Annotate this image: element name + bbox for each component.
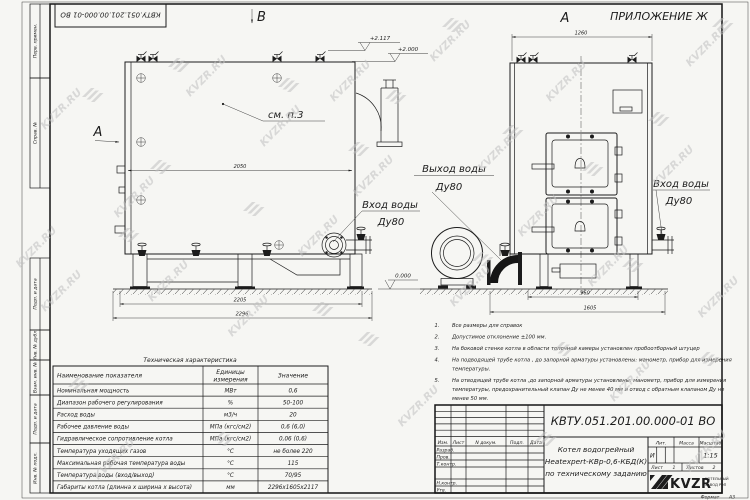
spec-row-unit: °С xyxy=(227,461,234,467)
position-marker-icon xyxy=(137,138,146,147)
note-number: 5. xyxy=(435,378,440,384)
spec-table-title: Техническая характеристика xyxy=(143,357,237,364)
spec-row-name: Температура уходящих газов xyxy=(57,449,147,455)
position-marker-icon xyxy=(273,74,282,83)
tb-row-razrab: Разраб. xyxy=(437,448,455,454)
company-line2: ЗАВОД РЭП xyxy=(705,483,727,487)
spec-col-unit-2: измерения xyxy=(213,377,248,384)
format-note: Формат А3 xyxy=(701,495,735,500)
elevation-zero-text: 0.000 xyxy=(395,274,411,280)
tb-hdr-list: Лист xyxy=(452,440,465,446)
note-text: Все размеры для справок xyxy=(452,323,523,329)
tb-hdr-podp: Подп. xyxy=(510,440,524,446)
inlet-side-text-1: Вход воды xyxy=(362,200,418,211)
view-a-front-label: А xyxy=(560,11,570,26)
margin-label-podp-data-1: Подп. и дата xyxy=(33,278,39,309)
spec-row-unit: °С xyxy=(227,449,234,455)
tb-row-tkontr: Т.контр. xyxy=(437,462,457,468)
view-a-label: А xyxy=(93,125,103,140)
spec-row-value: 20 xyxy=(289,413,297,419)
note-text: менее 50 мм. xyxy=(452,396,488,402)
spec-row-value: 0,6 (6,0) xyxy=(281,425,305,431)
margin-label-inv-dubl: Инв. № дубл. xyxy=(33,329,39,360)
spec-row-value: 115 xyxy=(288,461,299,467)
top-designation-text: КВТУ.051.201.00.000-01 ВО xyxy=(60,11,161,19)
appendix-label: ПРИЛОЖЕНИЕ Ж xyxy=(610,10,709,23)
tb-hdr-doc: N докум. xyxy=(475,440,496,446)
tb-lit-label: Лит. xyxy=(655,441,667,447)
spec-row-unit: МПа (кгс/см2) xyxy=(210,425,251,431)
spec-row-value: 2296х1605х2117 xyxy=(268,485,319,491)
tb-name-line1: Котел водогрейный xyxy=(558,445,635,454)
note-text: температуры, предохранительный клапан Ду… xyxy=(452,387,724,393)
margin-label-sprav-n: Справ. № xyxy=(33,122,39,145)
tb-lit-value: И xyxy=(650,452,655,460)
note-text: Допустимое отклонение ±100 мм. xyxy=(451,335,546,341)
dim-side-base-text: 2205 xyxy=(234,298,247,304)
tb-sheets-value: 2 xyxy=(713,465,716,471)
spec-row-unit: м3/ч xyxy=(224,413,238,419)
inlet-front-text-2: Ду80 xyxy=(665,196,692,207)
spec-col-name: Наименование показателя xyxy=(57,373,142,380)
margin-label-inv-podl: Инв. № подл. xyxy=(33,452,39,484)
elevation-2000-text: +2.000 xyxy=(398,47,419,53)
margin-label-podp-data-2: Подп. и дата xyxy=(33,403,39,434)
spec-row-value: 50-100 xyxy=(283,400,304,406)
company-line1: КОТЕЛЬНЫЙ xyxy=(705,476,729,481)
tb-row-prov: Пров. xyxy=(437,455,450,461)
spec-col-unit-1: Единицы xyxy=(216,369,245,376)
note-text: На боковой стенке котла в области топочн… xyxy=(452,346,700,352)
tb-name-line2: Heatexpert-КВр-0,6-КБД(К) xyxy=(545,457,647,466)
spec-row-name: Диапазон рабочего регулирования xyxy=(56,400,163,406)
spec-row-name: Гидравлическое сопротивление котла xyxy=(57,437,173,443)
format-label: Формат xyxy=(701,495,720,500)
position-marker-icon xyxy=(275,241,284,250)
spec-row-value: 70/95 xyxy=(285,473,302,479)
note-text: На подводящей трубе котла , до запорной … xyxy=(452,358,732,364)
elevation-2117-text: +2.117 xyxy=(370,36,391,42)
position-marker-icon xyxy=(137,74,146,83)
tb-sheet-label: Лист xyxy=(650,465,663,471)
spec-row-name: Габариты котла (длинна х ширина х высота… xyxy=(57,485,192,491)
spec-row-unit: °С xyxy=(227,473,234,479)
spec-row-name: Рабочее давление воды xyxy=(57,425,129,431)
note-number: 1. xyxy=(435,323,440,329)
dim-front-width-text: 1260 xyxy=(575,31,588,37)
spec-row-unit: мм xyxy=(226,485,235,491)
spec-row-unit: % xyxy=(228,400,233,406)
inlet-side-text-2: Ду80 xyxy=(377,217,404,228)
format-value: А3 xyxy=(728,495,735,500)
dim-front-total-text: 1605 xyxy=(584,306,597,312)
note-number: 3. xyxy=(435,346,440,352)
spec-row-name: Номинальная мощность xyxy=(57,388,130,394)
tb-row-nkontr: Н.контр. xyxy=(437,481,458,487)
note-number: 4. xyxy=(435,358,440,364)
spec-col-value: Значение xyxy=(278,373,309,380)
view-b-label: В xyxy=(257,10,266,25)
dim-front-base-text: 960 xyxy=(580,291,590,297)
tb-hdr-izm: Изм. xyxy=(438,440,449,446)
note-text: На отводящей трубе котла ,до запорной ар… xyxy=(452,378,726,384)
tb-mass-label: Масса xyxy=(679,441,694,447)
tb-name-line3: по техническому заданию xyxy=(545,469,646,478)
drawing-sheet: Перв. примен. Справ. № Подп. и дата Инв.… xyxy=(0,0,750,500)
note-number: 2. xyxy=(435,335,440,341)
spec-row-value: 0,6 xyxy=(288,388,297,394)
tb-doc-number: КВТУ.051.201.00.000-01 ВО xyxy=(551,414,716,428)
spec-row-name: Максимальная рабочая температура воды xyxy=(57,461,186,467)
spec-row-value: 0,06 (0,6) xyxy=(279,437,307,443)
outlet-text-2: Ду80 xyxy=(435,182,462,193)
margin-label-perv-primen: Перв. примен. xyxy=(33,24,39,59)
dim-side-width-text: 2050 xyxy=(234,164,247,170)
tb-sheet-value: 1 xyxy=(673,465,676,471)
margin-label-vzam-inv: Взам. инв. № xyxy=(33,362,39,393)
spec-row-unit: МВт xyxy=(224,388,237,394)
note-text: температуры. xyxy=(452,367,490,373)
spec-row-name: Расход воды xyxy=(57,413,95,419)
spec-row-value: не более 220 xyxy=(273,449,313,455)
tb-row-utv: Утв. xyxy=(437,488,447,494)
